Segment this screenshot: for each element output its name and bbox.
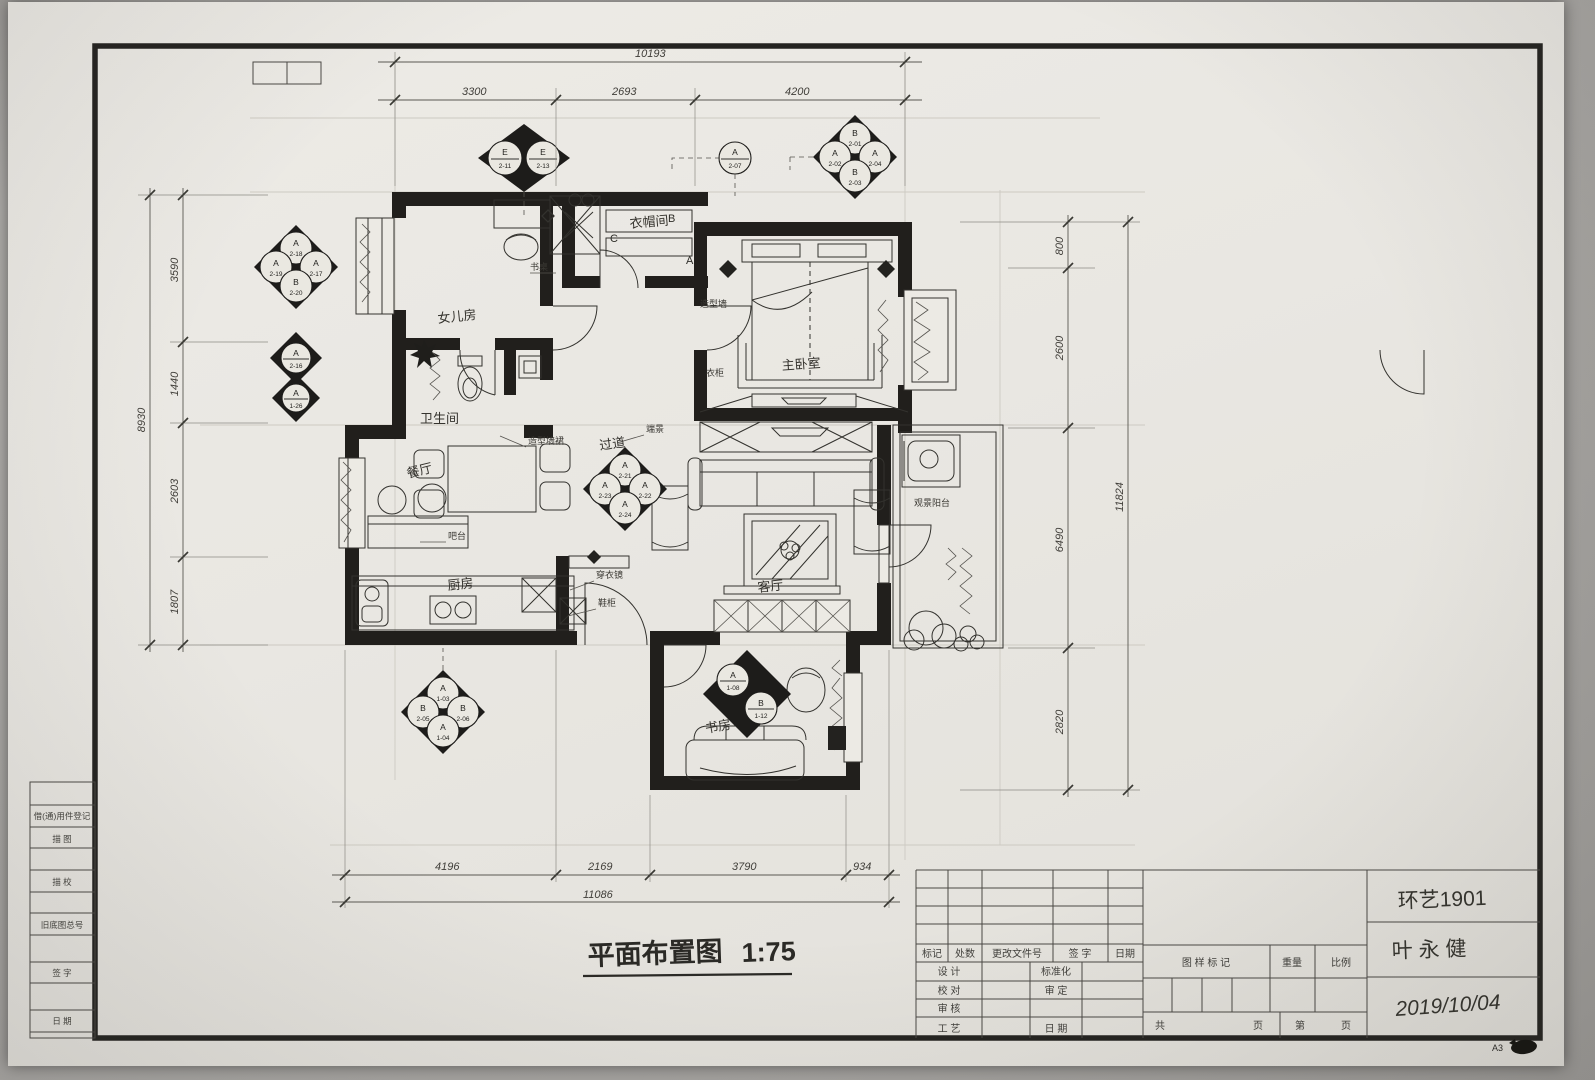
bay-window-master [904, 290, 956, 390]
svg-text:B: B [293, 277, 299, 287]
svg-text:2-11: 2-11 [499, 163, 512, 170]
svg-text:2169: 2169 [587, 861, 612, 873]
study-curtain [832, 660, 842, 676]
svg-text:2-04: 2-04 [868, 161, 881, 168]
tb-page: 页 [1253, 1020, 1263, 1032]
strip-borrow-label: 借(通)用件登记 [34, 811, 91, 821]
sheet-code: A3 [1492, 1043, 1503, 1053]
svg-text:2600: 2600 [1054, 335, 1066, 361]
drawing-title: 平面布置图 1:75 [583, 936, 796, 976]
door-entry [585, 583, 647, 645]
sheet-corner: A3 [1492, 1039, 1538, 1056]
drawing-title-scale: 1:75 [741, 936, 796, 968]
balcony-sink [902, 435, 960, 487]
svg-text:3790: 3790 [732, 861, 757, 873]
tb-change-doc: 更改文件号 [992, 947, 1042, 960]
bathroom-fixtures [430, 352, 541, 401]
svg-text:A: A [440, 683, 446, 693]
label-feature-wall: 造型墙 [700, 298, 727, 309]
svg-text:2-24: 2-24 [618, 512, 631, 519]
label-kitchen: 厨房 [447, 575, 474, 593]
svg-text:2603: 2603 [169, 478, 181, 504]
tb-audit: 审 核 [938, 1002, 961, 1015]
living-tv-unit [700, 422, 872, 452]
svg-text:A: A [273, 258, 279, 268]
tb-drawing-mark: 图 样 标 记 [1182, 956, 1230, 969]
tb-page2: 页 [1341, 1020, 1351, 1032]
svg-text:2-07: 2-07 [728, 163, 741, 170]
svg-text:10193: 10193 [635, 48, 666, 60]
tb-class-name: 环艺1901 [1397, 887, 1486, 913]
strip-sign-label: 签 字 [52, 968, 71, 978]
svg-text:A: A [602, 480, 608, 490]
svg-text:B: B [852, 128, 858, 138]
svg-text:A: A [293, 238, 299, 248]
svg-text:2-21: 2-21 [618, 473, 631, 480]
drawing-svg: 女儿房 卫生间 过道 衣帽间 主卧室 餐厅 吧台 厨房 客厅 书房 观景阳台 造… [0, 0, 1595, 1080]
label-balcony: 观景阳台 [914, 497, 950, 508]
svg-text:2-18: 2-18 [289, 251, 302, 258]
svg-text:B: B [758, 698, 764, 708]
svg-text:1-04: 1-04 [436, 735, 449, 742]
label-bathroom: 卫生间 [420, 411, 459, 426]
label-master-bedroom: 主卧室 [781, 355, 821, 373]
tb-scale: 比例 [1331, 956, 1351, 969]
label-daughter-room: 女儿房 [437, 307, 477, 326]
tb-student-name: 叶 永 健 [1391, 937, 1466, 963]
label-desk: 书桌 [530, 261, 548, 272]
photographed-drawing: 女儿房 卫生间 过道 衣帽间 主卧室 餐厅 吧台 厨房 客厅 书房 观景阳台 造… [0, 0, 1595, 1080]
balcony-plants [904, 548, 984, 651]
svg-text:E: E [540, 147, 546, 157]
drawing-title-text: 平面布置图 [587, 936, 723, 971]
svg-text:2-22: 2-22 [638, 493, 651, 500]
svg-text:A: A [313, 258, 319, 268]
svg-text:A: A [440, 722, 446, 732]
tb-count: 处数 [955, 947, 975, 960]
tb-standardize: 标准化 [1041, 965, 1071, 978]
elevation-marker-quad: A2-21 A2-23 A2-22 A2-24 [583, 447, 667, 531]
svg-text:1-26: 1-26 [289, 403, 302, 410]
balcony-rails [893, 425, 1003, 648]
living-armchairs [652, 486, 890, 554]
tb-date: 日期 [1115, 948, 1135, 960]
elevation-marker-quad: A1-03 B2-05 B2-06 A1-04 [401, 648, 485, 754]
tb-sign: 签 字 [1069, 947, 1092, 960]
french-window-study [714, 586, 850, 632]
svg-text:A: A [622, 460, 628, 470]
svg-text:B: B [420, 703, 426, 713]
svg-text:2-05: 2-05 [416, 716, 429, 723]
elevation-marker-quad: B2-01 A2-02 A2-04 B2-03 [790, 115, 897, 199]
svg-text:A: A [293, 388, 299, 398]
label-wardrobe: 衣柜 [706, 367, 724, 378]
svg-text:934: 934 [853, 861, 871, 873]
door-bath [1380, 350, 1424, 394]
svg-text:2-01: 2-01 [848, 141, 861, 148]
label-bar: 吧台 [448, 530, 466, 541]
coffee-table [744, 514, 836, 586]
tb-date-label: 日 期 [1045, 1023, 1068, 1035]
label-end-view: 端景 [646, 423, 664, 434]
strip-old-sheet-label: 旧底图总号 [41, 920, 84, 930]
svg-text:2-13: 2-13 [536, 163, 549, 170]
living-sofa [688, 458, 884, 510]
master-curtain [878, 300, 888, 372]
tb-date-value: 2019/10/04 [1394, 991, 1501, 1021]
svg-text:3300: 3300 [462, 86, 487, 98]
door-study [664, 645, 706, 687]
svg-text:A: A [832, 148, 838, 158]
tb-check: 校 对 [938, 984, 961, 997]
door-daughter [553, 306, 597, 350]
svg-text:4200: 4200 [785, 86, 810, 98]
strip-date-label: 日 期 [52, 1016, 71, 1026]
tb-mark: 标记 [922, 948, 942, 960]
svg-text:2-02: 2-02 [828, 161, 841, 168]
svg-text:3590: 3590 [169, 257, 181, 282]
svg-text:11824: 11824 [1114, 482, 1126, 512]
svg-text:800: 800 [1054, 236, 1066, 255]
elevation-marker-single: A 2-07 [672, 142, 751, 196]
left-margin-strip: 借(通)用件登记 描 图 描 校 旧底图总号 签 字 日 期 [30, 782, 95, 1038]
svg-text:8930: 8930 [136, 407, 148, 432]
svg-text:2820: 2820 [1054, 709, 1066, 735]
stamp-logo-icon [1509, 1039, 1538, 1056]
svg-text:A: A [872, 148, 878, 158]
svg-text:1440: 1440 [169, 371, 181, 396]
sheet-frame [95, 46, 1540, 1038]
label-shoe-cabinet: 鞋柜 [598, 597, 616, 608]
tb-craft: 工 艺 [938, 1023, 961, 1035]
tb-no: 第 [1295, 1019, 1305, 1032]
svg-text:B: B [460, 703, 466, 713]
tb-approve: 审 定 [1045, 984, 1068, 997]
svg-text:2-16: 2-16 [289, 363, 302, 370]
section-letter-a: A [686, 255, 694, 267]
label-mirror: 穿衣镜 [596, 569, 623, 580]
svg-text:A: A [622, 499, 628, 509]
dimension-right: 800 2600 6490 2820 11824 [960, 215, 1140, 797]
tb-design: 设 计 [938, 965, 961, 978]
svg-text:2693: 2693 [611, 86, 637, 98]
tb-total: 共 [1155, 1020, 1165, 1032]
label-dado: 造型墙裙 [528, 435, 564, 446]
dining-set [414, 444, 570, 518]
label-study: 书房 [704, 717, 732, 736]
entry-shoe-cabinet [560, 550, 629, 624]
elevation-marker-quad: A2-18 A2-19 A2-17 B2-20 [254, 225, 338, 309]
svg-text:2-03: 2-03 [848, 180, 861, 187]
svg-text:2-20: 2-20 [289, 290, 302, 297]
door-balcony [889, 525, 931, 567]
svg-text:A: A [642, 480, 648, 490]
svg-text:1-08: 1-08 [726, 685, 739, 692]
svg-text:4196: 4196 [435, 861, 460, 873]
svg-text:2-23: 2-23 [598, 493, 611, 500]
strip-trace-label: 描 图 [52, 834, 71, 844]
section-letter-c: C [610, 233, 618, 245]
svg-text:A: A [732, 147, 738, 157]
label-cloakroom: 衣帽间 [629, 213, 669, 231]
svg-text:2-06: 2-06 [456, 716, 469, 723]
svg-text:11086: 11086 [583, 889, 614, 901]
title-block: 标记 处数 更改文件号 签 字 日期 设 计 标准化 校 对 审 定 审 核 工… [916, 870, 1540, 1038]
section-letter-b: B [668, 213, 675, 225]
svg-text:2-19: 2-19 [269, 271, 282, 278]
svg-text:A: A [730, 670, 736, 680]
svg-text:A: A [293, 348, 299, 358]
svg-text:6490: 6490 [1054, 527, 1066, 552]
tb-weight: 重量 [1282, 956, 1302, 969]
svg-text:E: E [502, 147, 508, 157]
svg-text:2-17: 2-17 [309, 271, 322, 278]
study-chair [787, 668, 825, 712]
window-daughter-west [356, 218, 394, 314]
svg-text:B: B [852, 167, 858, 177]
window-dining-west [339, 458, 365, 548]
study-cabinet [828, 726, 846, 750]
svg-text:1807: 1807 [169, 589, 181, 614]
dimension-left: 3590 1440 2603 1807 8930 [136, 188, 268, 652]
svg-text:1-12: 1-12 [754, 713, 767, 720]
door-master [707, 306, 751, 350]
strip-trace-check-label: 描 校 [52, 877, 72, 887]
svg-text:1-03: 1-03 [436, 696, 449, 703]
elevation-marker-single: A 1-26 [272, 374, 320, 422]
label-living: 客厅 [757, 577, 784, 595]
